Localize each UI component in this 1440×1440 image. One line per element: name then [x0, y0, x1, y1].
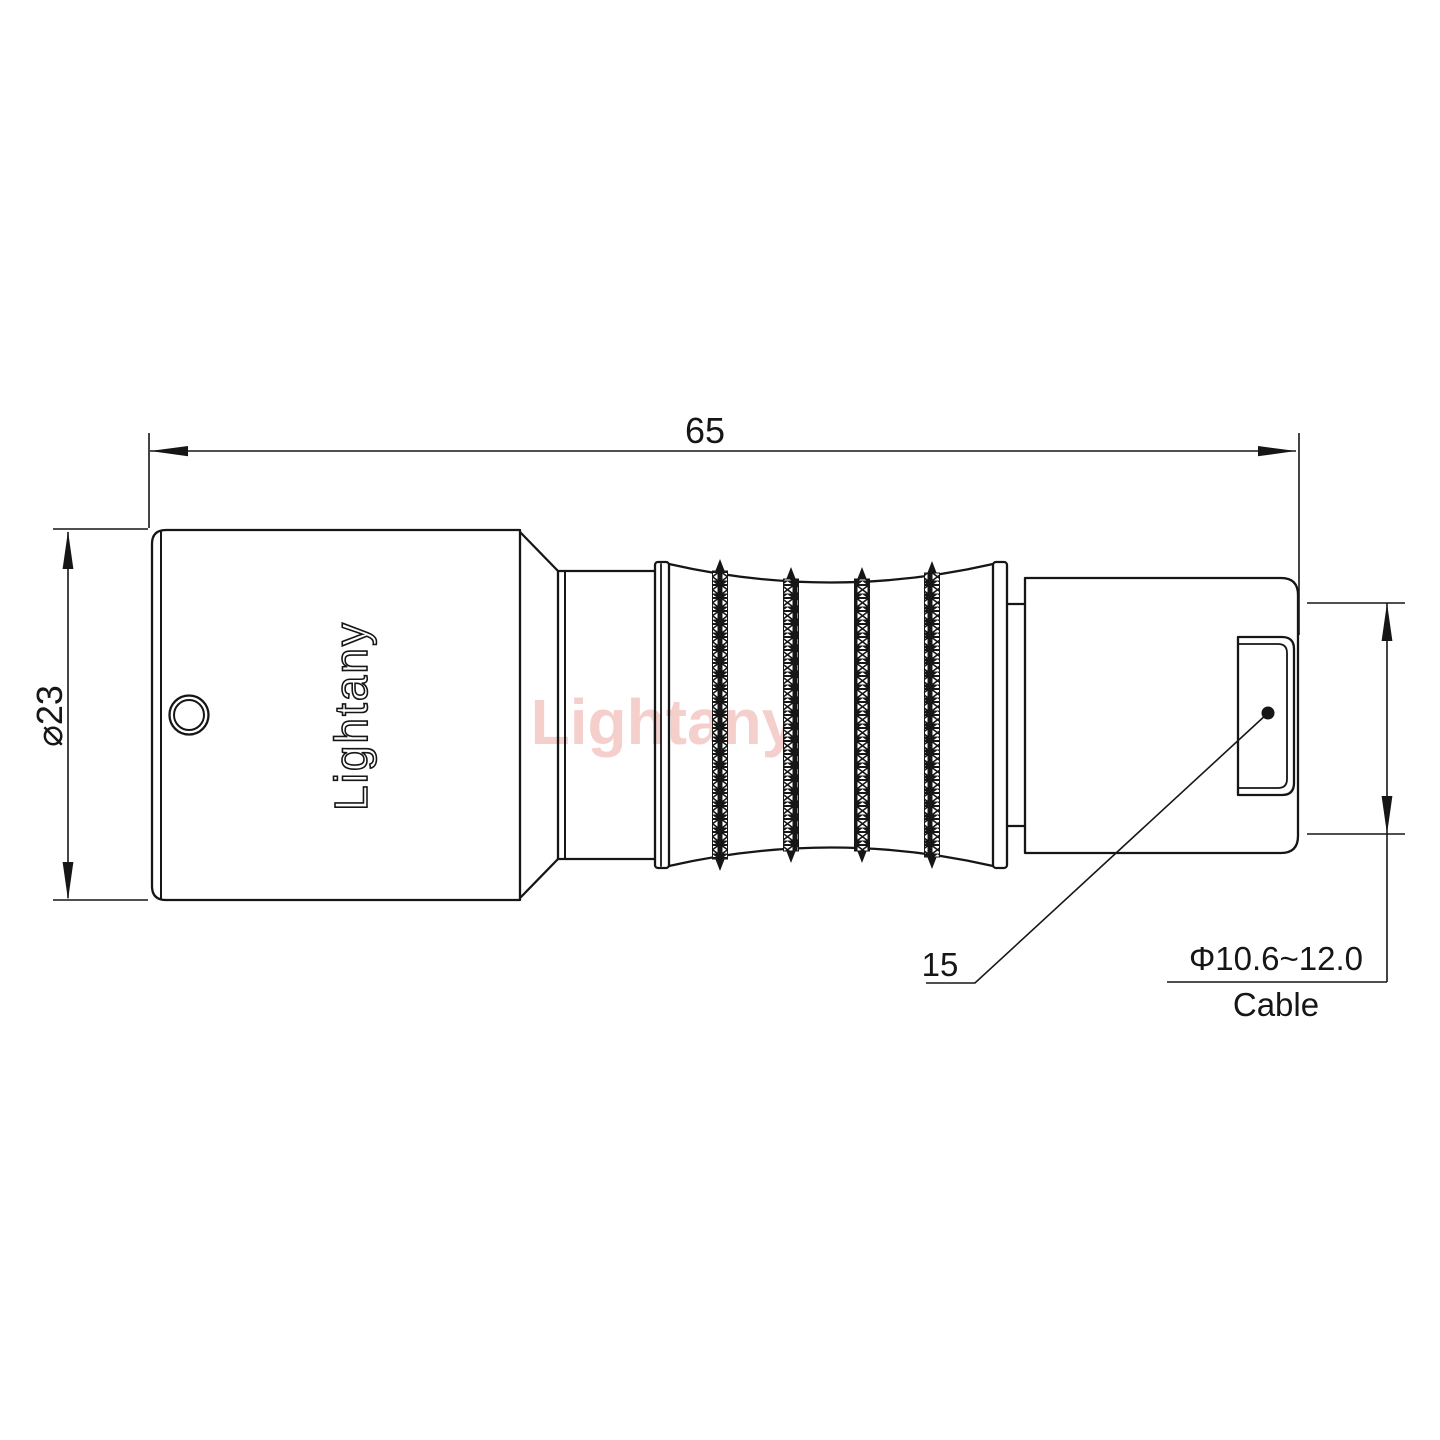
- leader-dot: [1262, 707, 1275, 720]
- cable-range-value: Φ10.6~12.0: [1189, 940, 1363, 977]
- knurl-band: [925, 561, 940, 869]
- knurl-band: [784, 567, 799, 863]
- watermark: Lightany: [531, 686, 798, 758]
- body-diameter-value: ⌀23: [29, 685, 70, 747]
- overall-length-value: 65: [685, 410, 725, 451]
- knurl-band: [855, 567, 870, 863]
- nut-length-value: 15: [922, 946, 959, 983]
- connector-technical-drawing: Lightany: [0, 0, 1440, 1440]
- technical-drawing-page: Lightany: [0, 0, 1440, 1440]
- knurl-band: [713, 559, 728, 871]
- cable-label: Cable: [1233, 986, 1319, 1023]
- brand-engraving: Lightany: [325, 621, 377, 811]
